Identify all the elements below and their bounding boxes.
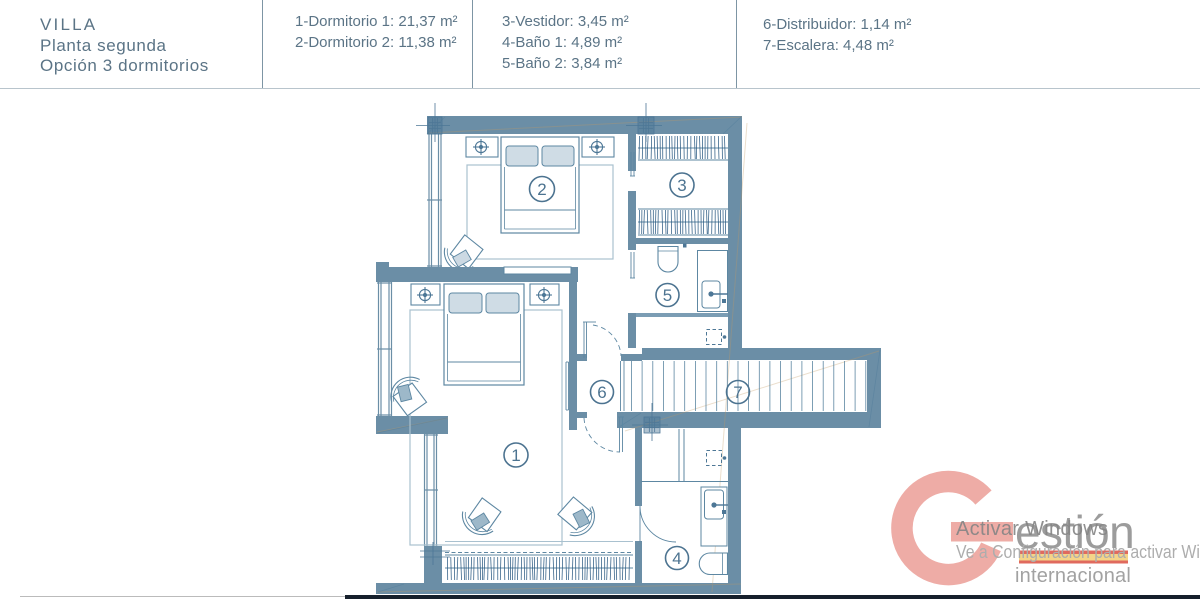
svg-text:3: 3 bbox=[677, 176, 686, 195]
svg-text:2: 2 bbox=[537, 180, 546, 199]
svg-text:6: 6 bbox=[597, 383, 606, 402]
svg-text:5: 5 bbox=[663, 286, 672, 305]
svg-text:7: 7 bbox=[733, 383, 742, 402]
svg-text:1: 1 bbox=[511, 446, 520, 465]
svg-text:4: 4 bbox=[672, 549, 681, 568]
